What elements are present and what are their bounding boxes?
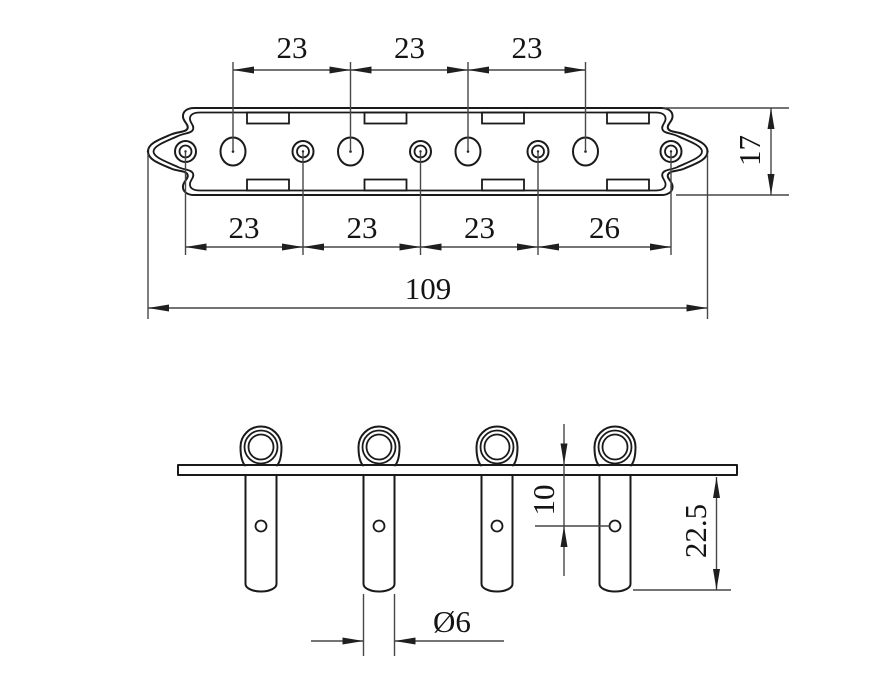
slot-top-2 (365, 113, 407, 124)
left-tip-point (147, 150, 149, 152)
dim-label-upper-1: 23 (277, 30, 308, 65)
dim-label-lower-2: 23 (347, 210, 378, 245)
dim-label-post-diameter: Ø6 (433, 604, 471, 639)
slot-bottom-2 (365, 180, 407, 191)
top-view-plate: 23 23 23 23 23 23 26 (147, 30, 789, 319)
slot-top-3 (482, 113, 524, 124)
eyelet-4 (595, 426, 636, 465)
dim-label-post-length: 22.5 (678, 504, 713, 558)
post-3 (482, 475, 513, 591)
plate-right-end-outer (660, 108, 708, 195)
string-hole-1 (256, 521, 267, 532)
eyelet-2 (359, 426, 400, 465)
dim-label-hole-offset: 10 (526, 485, 561, 516)
dim-label-plate-height: 17 (732, 135, 767, 166)
post-length-dimension: 22.5 (633, 477, 731, 590)
eyelet-3 (477, 426, 518, 465)
plate-right-end-inner (656, 113, 703, 191)
technical-drawing: 23 23 23 23 23 23 26 (0, 0, 879, 685)
upper-dimension-chain: 23 23 23 (233, 30, 586, 152)
slot-bottom-1 (247, 180, 289, 191)
plate-side-profile (178, 465, 737, 475)
dim-label-upper-3: 23 (512, 30, 543, 65)
dim-label-lower-3: 23 (464, 210, 495, 245)
slot-top-4 (607, 113, 649, 124)
post-diameter-dimension: Ø6 (311, 594, 504, 656)
right-tip-point (706, 150, 708, 152)
dim-label-lower-4: 26 (589, 210, 620, 245)
plate-left-end-outer (148, 108, 196, 195)
post-1 (246, 475, 277, 592)
eyelet-1 (241, 426, 282, 465)
dim-label-lower-1: 23 (229, 210, 260, 245)
drawing-canvas: 23 23 23 23 23 23 26 (0, 0, 879, 685)
screw-holes (175, 141, 682, 162)
side-view-posts: 10 22.5 Ø6 (178, 424, 737, 656)
plate-left-end-inner (154, 113, 201, 191)
slot-top-1 (247, 113, 289, 124)
string-hole-2 (374, 521, 385, 532)
string-hole-3 (492, 521, 503, 532)
string-hole-4 (610, 521, 621, 532)
slot-bottom-4 (607, 180, 649, 191)
post-2 (364, 475, 395, 592)
slot-bottom-3 (482, 180, 524, 191)
dim-label-upper-2: 23 (394, 30, 425, 65)
lower-dimension-chain: 23 23 23 26 (186, 152, 672, 256)
hole-offset-dimension: 10 (526, 424, 610, 576)
dim-label-overall-width: 109 (405, 271, 452, 306)
post-4 (600, 475, 631, 592)
